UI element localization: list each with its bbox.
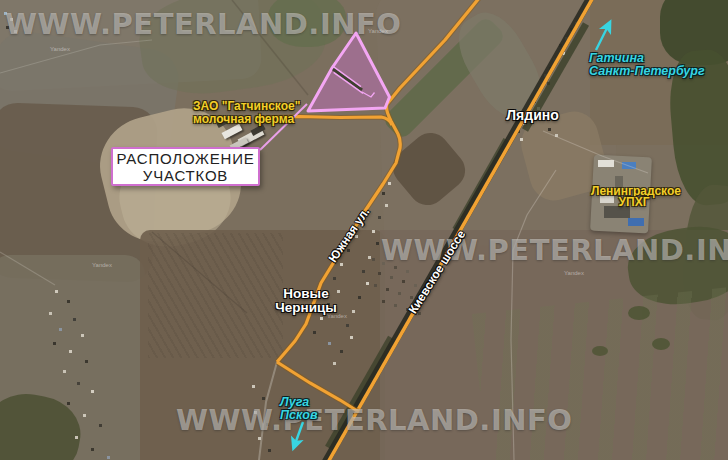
field-track (0, 252, 55, 285)
novye-chernitsy-label: Новые Черницы (274, 287, 338, 315)
novye-chernitsy-line2: Черницы (274, 301, 338, 315)
map-credit: Yandex (92, 262, 112, 268)
location-box: РАСПОЛОЖЕНИЕ УЧАСТКОВ (111, 147, 260, 186)
watermark: WWW.PETERLAND.INFO (5, 7, 401, 41)
upkhg-label-line2: УПХГ (591, 197, 677, 208)
map-credit: Yandex (368, 28, 388, 34)
location-box-line2: УЧАСТКОВ (143, 167, 228, 184)
lyadino-label: Лядино (505, 107, 560, 123)
farm-label-line1: ЗАО "Гатчинское" (193, 100, 293, 113)
watermark: WWW.PETERLAND.INFO (381, 233, 728, 267)
watermark: WWW.PETERLAND.INFO (176, 403, 572, 437)
location-box-line1: РАСПОЛОЖЕНИЕ (116, 150, 254, 167)
novye-chernitsy-line1: Новые (274, 287, 338, 301)
luga-direction-line1: Луга (280, 396, 317, 409)
gatchina-direction-line2: Санкт-Петербург (589, 65, 705, 78)
upkhg-label: Ленинградское УПХГ (591, 186, 677, 208)
luga-direction-label: Луга Псков (280, 396, 317, 421)
farm-label: ЗАО "Гатчинское" молочная ферма (193, 100, 293, 125)
land-plot-polygon (308, 33, 390, 111)
farm-label-line2: молочная ферма (193, 113, 293, 126)
gatchina-direction-label: Гатчина Санкт-Петербург (589, 52, 705, 77)
field-track (0, 40, 152, 73)
map-credit: Yandex (564, 270, 584, 276)
map-credit: Yandex (50, 46, 70, 52)
luga-direction-line2: Псков (280, 409, 317, 422)
field-boundary (152, 232, 247, 313)
field-track (543, 131, 648, 173)
satellite-map: WWW.PETERLAND.INFO WWW.PETERLAND.INFO WW… (0, 0, 728, 460)
gatchina-direction-line1: Гатчина (589, 52, 705, 65)
gatchina-direction-arrow-icon (596, 26, 608, 50)
